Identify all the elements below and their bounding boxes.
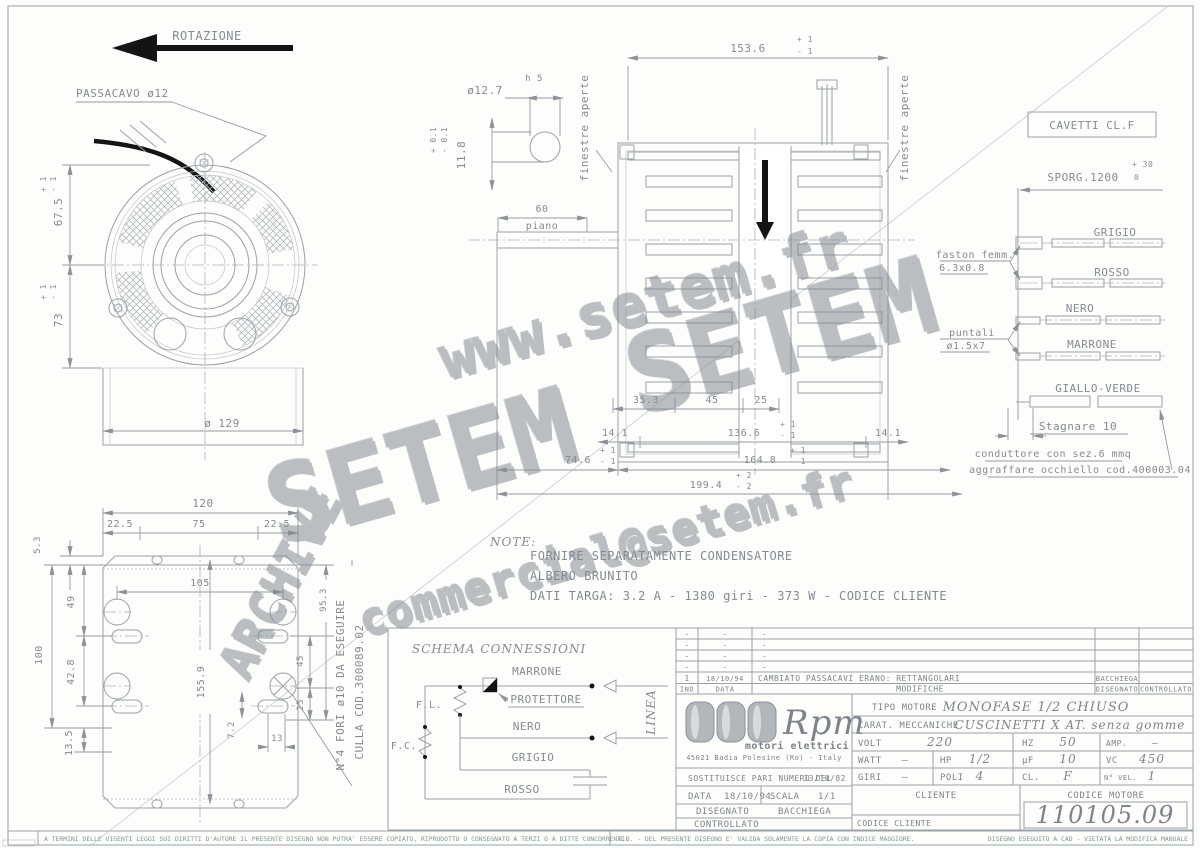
- rev-dash: -: [762, 652, 767, 661]
- disegnato-value: BACCHIEGA: [778, 807, 831, 817]
- revision-table: - - - - - - - - - - - - 1 18/10/94 CAMBI…: [676, 628, 1193, 694]
- dim-5-3: 5.3: [33, 536, 43, 554]
- dim-153-6-tol-m: - 1: [797, 47, 813, 56]
- legal-footer: A TERMINI DELLE VIGENTI LEGGI SUI DIRITT…: [44, 835, 1188, 843]
- amp-label: AMP.: [1106, 739, 1127, 748]
- schema-title: SCHEMA CONNESSIONI: [412, 642, 586, 656]
- dim-136-6-tol-p: + 1: [780, 420, 796, 429]
- dim-73: 73: [52, 313, 65, 327]
- schema-nero: NERO: [513, 720, 542, 733]
- wire-rosso-label: ROSSO: [1094, 266, 1130, 279]
- rev-dash: -: [684, 630, 689, 639]
- giri-label: GIRI: [858, 773, 882, 783]
- dim-60: 60: [535, 204, 548, 215]
- dim-49: 49: [66, 595, 77, 608]
- passacavo-callout: PASSACAVO ø12: [76, 87, 266, 192]
- nvel-label: N° VEL.: [1104, 774, 1137, 782]
- dim-7-2: 7.2: [227, 721, 237, 739]
- dim-14-1-right: 14.1: [875, 428, 901, 439]
- drawing-sheet: ROTAZIONE PASSACAVO ø12 ø 129 67.5 + 1 -…: [0, 0, 1200, 848]
- rpm-logo: Rpm: [686, 702, 866, 743]
- legal-right-1: N.B. - DEL PRESENTE DISEGNO E' VALIDA SO…: [618, 835, 914, 843]
- dim-73-tol-p: + 1: [39, 284, 48, 300]
- rev-h-con: CONTROLLATO: [1140, 686, 1192, 694]
- capacitor-symbol: [573, 777, 607, 785]
- dim-dia12-7: ø12.7: [467, 84, 503, 97]
- logo-subtitle: motori elettrici: [745, 740, 849, 752]
- motor-data-table: TIPO MOTORE MONOFASE 1/2 CHIUSO CARAT. M…: [852, 700, 1193, 830]
- title-block: - - - - - - - - - - - - 1 18/10/94 CAMBI…: [676, 628, 1193, 830]
- passacavo-label: PASSACAVO ø12: [76, 87, 169, 100]
- schema-fc: F.C.: [391, 741, 417, 752]
- schema-linea: LINEA: [644, 689, 658, 736]
- dim-136-6: 136.6: [728, 428, 761, 439]
- fl-resistor: [454, 688, 466, 714]
- wire-grigio-label: GRIGIO: [1094, 226, 1137, 239]
- dim-120: 120: [192, 497, 213, 510]
- rev-dash: -: [722, 663, 727, 672]
- finestre-aperte-left: finestre aperte: [578, 75, 591, 182]
- fori-note-2: CULLA COD.300089.02: [353, 624, 366, 759]
- rev-dash: -: [762, 641, 767, 650]
- vc-label: VC: [1106, 756, 1118, 766]
- rev-dash: -: [722, 641, 727, 650]
- sostituisce-date: 13/10/82: [803, 774, 846, 783]
- rev-dash: -: [684, 652, 689, 661]
- watt-value: –: [902, 755, 909, 766]
- dim-95-3: 95.3: [319, 588, 329, 612]
- rev1-author: BACCHIEGA: [1096, 675, 1139, 683]
- dim-13-5: 13.5: [64, 730, 75, 756]
- schema-marrone: MARRONE: [512, 665, 562, 678]
- terminal-cable: [817, 80, 837, 145]
- tipo-label: TIPO MOTORE: [872, 703, 937, 713]
- motor-front-view: ø 129 67.5 + 1 - 1 73 + 1 - 1: [39, 152, 318, 460]
- hz-value: 50: [1059, 735, 1076, 749]
- carat-label: CARAT. MECCANICHE: [858, 721, 959, 731]
- dim-14-1-left: 14.1: [602, 428, 628, 439]
- scala-label: SCALA: [770, 792, 800, 802]
- shaft-key-detail: ø12.7 h 5 11.8 + 0.1 - 0.1: [429, 74, 563, 190]
- dim-164-8: 164.8: [744, 455, 777, 466]
- disegnato-label: DISEGNATO: [696, 807, 749, 817]
- protettore-symbol: [483, 678, 508, 701]
- dim-22-5-l: 22.5: [107, 519, 133, 530]
- rev-h-data: DATA: [716, 686, 735, 694]
- rev-h-ind: IND: [680, 686, 694, 694]
- volt-label: VOLT: [858, 739, 882, 749]
- dim-136-6-tol-m: - 1: [780, 431, 796, 440]
- nvel-value: 1: [1148, 769, 1157, 783]
- legal-right-2: DISEGNO ESEGUITO A CAD - VIETATA LA MODI…: [988, 835, 1188, 843]
- dim-153-6-tol-p: + 1: [797, 35, 813, 44]
- dim-h5: h 5: [525, 74, 543, 84]
- logo-text: Rpm: [782, 703, 866, 743]
- rev-dash: -: [722, 652, 727, 661]
- hp-label: HP: [940, 756, 952, 766]
- tipo-value: MONOFASE 1/2 CHIUSO: [942, 700, 1130, 715]
- watt-label: WATT: [858, 756, 882, 766]
- scala-value: 1/1: [818, 792, 836, 802]
- codice-motore-header: CODICE MOTORE: [1068, 791, 1145, 801]
- wire-marrone: MARRONE: [1016, 338, 1165, 360]
- rev-dash: -: [762, 663, 767, 672]
- dim-199-4-tol-p: + 2: [736, 471, 752, 480]
- company-block: Rpm motori elettrici 45021 Badia Polesin…: [676, 694, 866, 830]
- dim-105: 105: [190, 578, 210, 589]
- rev1-desc: CAMBIATO PASSACAVI ERANO: RETTANGOLARI: [758, 674, 960, 683]
- wire-giallo-verde: GIALLO-VERDE: [1016, 382, 1162, 407]
- sporg-tol-m: 0: [1134, 173, 1139, 182]
- front-hole-left: [154, 318, 186, 350]
- hz-label: HZ: [1022, 739, 1034, 749]
- dim-11-8: 11.8: [455, 141, 468, 170]
- rev-h-dis: DISEGNATO: [1096, 686, 1138, 694]
- cl-value: F: [1062, 769, 1072, 783]
- wire-giallo-verde-label: GIALLO-VERDE: [1055, 382, 1140, 395]
- dim-164-8-tol-m: - 1: [790, 457, 806, 466]
- poli-label: POLI: [940, 773, 964, 783]
- rev1-ind: 1: [684, 674, 689, 683]
- technical-drawing-canvas: ROTAZIONE PASSACAVO ø12 ø 129 67.5 + 1 -…: [0, 0, 1200, 848]
- dim-74-6-tol-p: + 1: [600, 446, 616, 455]
- mounting-ear-top: [195, 154, 213, 172]
- dim-67-5-tol-p: + 1: [39, 176, 48, 192]
- dim-piano: piano: [526, 221, 559, 232]
- rev-dash: -: [722, 630, 727, 639]
- dim-153-6: 153.6: [730, 42, 766, 55]
- wire-marrone-label: MARRONE: [1067, 338, 1117, 351]
- dim-13: 13: [271, 734, 283, 744]
- dim-67-5-tol-m: - 1: [49, 176, 58, 192]
- dim-74-6-tol-m: - 1: [600, 457, 616, 466]
- company-address: 45021 Badia Polesine (Ro) - Italy: [686, 754, 842, 762]
- cliente-header: CLIENTE: [915, 791, 956, 801]
- dim-199-4: 199.4: [690, 480, 723, 491]
- schema-fl: F.L.: [416, 700, 442, 711]
- hp-value: 1/2: [969, 752, 991, 766]
- data-value: 18/10/94: [724, 792, 771, 802]
- codice-cliente-label: CODICE CLIENTE: [857, 819, 931, 828]
- wire-nero: NERO: [1016, 302, 1165, 324]
- rev1-date: 18/10/94: [706, 675, 744, 683]
- sporg-label: SPORG.1200: [1047, 171, 1118, 184]
- wiring-schema: SCHEMA CONNESSIONI MARRONE PROTETTORE F.…: [388, 628, 676, 830]
- rev-h-mod: MODIFICHE: [896, 685, 944, 694]
- schema-protettore: PROTETTORE: [510, 693, 581, 706]
- rev-dash: -: [762, 630, 767, 639]
- dim-25-plate: 25: [296, 699, 306, 711]
- legal-left: A TERMINI DELLE VIGENTI LEGGI SUI DIRITT…: [44, 835, 629, 843]
- fori-note-1: N°4 FORI ø10 DA ESEGUIRE: [334, 600, 347, 771]
- rev-dash: -: [684, 641, 689, 650]
- dim-11-8-tol-m: - 0.1: [440, 127, 449, 154]
- schema-rosso: ROSSO: [504, 783, 540, 796]
- carat-value: CUSCINETTI X AT. senza gomme: [955, 718, 1186, 732]
- giri-value: –: [902, 772, 909, 783]
- volt-value: 220: [926, 735, 953, 749]
- wire-grigio: GRIGIO: [1016, 226, 1165, 249]
- rev-dash: -: [684, 663, 689, 672]
- dim-155-9: 155.9: [196, 666, 207, 699]
- poli-value: 4: [975, 769, 985, 783]
- conduttore-label: conduttore con sez.6 mmq: [975, 449, 1132, 460]
- faston-label-1: faston femm.: [936, 250, 1014, 261]
- dim-45-plate: 45: [296, 655, 306, 667]
- wire-rosso: ROSSO: [1016, 266, 1165, 289]
- rotation-arrow: ROTAZIONE: [112, 29, 293, 62]
- amp-value: –: [1152, 738, 1159, 749]
- controllato-label: CONTROLLATO: [694, 820, 759, 830]
- data-label: DATA: [688, 792, 712, 802]
- dim-11-8-tol-p: + 0.1: [429, 127, 438, 154]
- dim-75: 75: [192, 519, 205, 530]
- dim-42-8: 42.8: [66, 659, 77, 685]
- vc-value: 450: [1138, 752, 1165, 766]
- dim-73-tol-m: - 1: [49, 284, 58, 300]
- dim-164-8-tol-p: + 1: [790, 446, 806, 455]
- wire-nero-label: NERO: [1066, 302, 1095, 315]
- puntali-label-2: ø1.5x7: [946, 341, 985, 352]
- puntali-label-1: puntali: [949, 328, 995, 339]
- note-line-3: DATI TARGA: 3.2 A - 1380 giri - 373 W - …: [530, 589, 947, 603]
- uf-value: 10: [1059, 752, 1076, 766]
- cl-label: CL.: [1022, 773, 1040, 783]
- sporg-tol-p: + 30: [1132, 160, 1153, 169]
- finestre-aperte-right: finestre aperte: [898, 75, 911, 182]
- dim-67-5: 67.5: [52, 198, 65, 227]
- dim-100: 100: [34, 645, 45, 665]
- schema-grigio: GRIGIO: [512, 751, 555, 764]
- motor-code: 110105.09: [1036, 801, 1175, 829]
- faston-label-2: 6.3x0.8: [939, 263, 985, 274]
- cable-detail: CAVETTI CL.F SPORG.1200 + 30 0 GRIGIO RO…: [936, 112, 1191, 477]
- rotation-label: ROTAZIONE: [172, 29, 242, 43]
- dim-dia129: ø 129: [204, 417, 240, 430]
- occhiello-label: aggraffare occhiello cod.400003.04: [969, 465, 1191, 476]
- cavetti-label: CAVETTI CL.F: [1049, 119, 1134, 132]
- uf-label: µF: [1022, 756, 1034, 766]
- stagnare-label: Stagnare 10: [1039, 420, 1117, 433]
